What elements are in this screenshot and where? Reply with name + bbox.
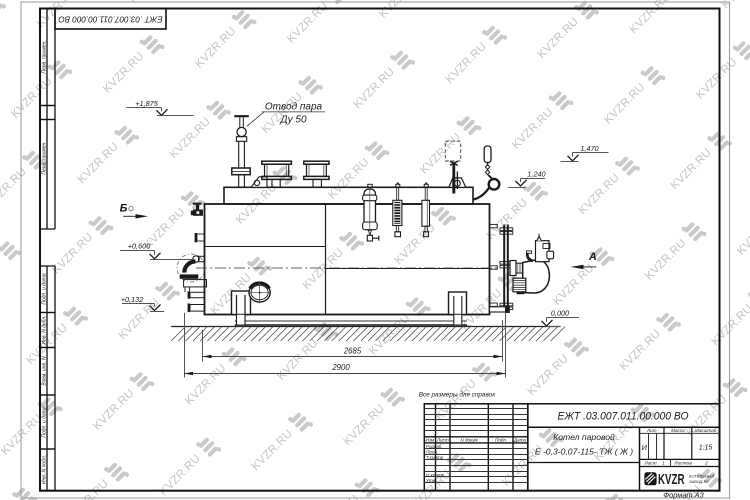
- svg-text:KVZR.RU: KVZR.RU: [341, 402, 387, 448]
- svg-text:KVZR.RU: KVZR.RU: [182, 361, 228, 407]
- svg-text:Изм: Изм: [426, 438, 435, 443]
- svg-text:1,240: 1,240: [527, 170, 545, 179]
- svg-text:КОТЕЛЬНЫЙ: КОТЕЛЬНЫЙ: [689, 474, 714, 479]
- svg-text:KVZR.RU: KVZR.RU: [376, 0, 422, 21]
- svg-text:N докум: N докум: [460, 438, 478, 443]
- svg-text:Утв.: Утв.: [426, 478, 436, 483]
- svg-text:KVZR.RU: KVZR.RU: [274, 336, 320, 382]
- svg-text:+0,132: +0,132: [121, 295, 144, 304]
- svg-text:ЗАВОД.РУ: ЗАВОД.РУ: [689, 479, 709, 484]
- svg-text:1,470: 1,470: [580, 144, 598, 153]
- svg-text:Лист: Лист: [643, 461, 656, 467]
- svg-text:Пров.: Пров.: [426, 450, 438, 455]
- svg-text:Дата: Дата: [513, 438, 527, 443]
- svg-text:Лит: Лит: [646, 428, 657, 433]
- svg-text:Ду 50: Ду 50: [279, 115, 306, 126]
- svg-text:KVZR.RU: KVZR.RU: [617, 327, 663, 373]
- svg-text:KVZR.RU: KVZR.RU: [601, 80, 647, 126]
- svg-text:Разраб.: Разраб.: [426, 444, 443, 449]
- svg-text:KVZR.RU: KVZR.RU: [75, 140, 121, 186]
- svg-text:2: 2: [704, 461, 708, 467]
- svg-text:KVZR.RU: KVZR.RU: [642, 236, 688, 282]
- svg-text:Инв. N дубл.: Инв. N дубл.: [41, 316, 47, 345]
- svg-text:KVZR.RU: KVZR.RU: [0, 255, 4, 301]
- svg-text:KVZR.RU: KVZR.RU: [126, 0, 172, 5]
- svg-text:KVZR.RU: KVZR.RU: [535, 15, 581, 61]
- svg-text:KVZR.RU: KVZR.RU: [351, 65, 397, 111]
- svg-text:KVZR.RU: KVZR.RU: [315, 492, 361, 500]
- svg-text:Инв. N подл.: Инв. N подл.: [41, 455, 47, 484]
- svg-text:Взам. инв. N: Взам. инв. N: [41, 356, 47, 386]
- svg-text:2900: 2900: [331, 363, 350, 372]
- svg-text:1: 1: [662, 461, 665, 467]
- svg-text:Т.контр: Т.контр: [426, 455, 444, 460]
- svg-text:KVZR: KVZR: [658, 471, 685, 488]
- svg-text:А: А: [588, 251, 597, 263]
- svg-text:KVZR.RU: KVZR.RU: [668, 146, 714, 192]
- svg-text:KVZR.RU: KVZR.RU: [0, 411, 45, 457]
- svg-text:KVZR.RU: KVZR.RU: [443, 40, 489, 86]
- svg-text:KVZR.RU: KVZR.RU: [49, 230, 95, 276]
- svg-text:Б: Б: [120, 203, 128, 215]
- svg-text:KVZR.RU: KVZR.RU: [525, 352, 571, 398]
- svg-text:KVZR.RU: KVZR.RU: [576, 171, 622, 217]
- svg-text:KVZR.RU: KVZR.RU: [259, 90, 305, 136]
- svg-text:0,000: 0,000: [551, 309, 569, 318]
- svg-text:KVZR.RU: KVZR.RU: [167, 115, 213, 161]
- svg-text:Перв. примен.: Перв. примен.: [41, 40, 47, 73]
- svg-text:Листов: Листов: [673, 461, 692, 467]
- svg-text:Подп: Подп: [495, 438, 506, 443]
- svg-text:Масса: Масса: [671, 428, 685, 433]
- svg-text:KVZR.RU: KVZR.RU: [65, 477, 111, 500]
- svg-text:KVZR.RU: KVZR.RU: [693, 55, 739, 101]
- svg-text:ЕЖТ .03.007.011.00.000 ВО: ЕЖТ .03.007.011.00.000 ВО: [558, 410, 689, 422]
- svg-text:Е -0,3-0,07-115- ТЖ ( Ж ): Е -0,3-0,07-115- ТЖ ( Ж ): [535, 447, 633, 457]
- svg-text:KVZR.RU: KVZR.RU: [734, 211, 750, 257]
- svg-text:KVZR.RU: KVZR.RU: [100, 49, 146, 95]
- svg-text:И: И: [642, 443, 648, 452]
- svg-text:2685: 2685: [343, 347, 362, 356]
- svg-text:+0,600: +0,600: [128, 241, 151, 250]
- svg-text:KVZR.RU: KVZR.RU: [249, 427, 295, 473]
- svg-text:Формат А3: Формат А3: [663, 491, 704, 500]
- svg-text:KVZR.RU: KVZR.RU: [0, 165, 29, 211]
- svg-text:Н.контр: Н.контр: [426, 472, 445, 477]
- svg-text:Котел паровой: Котел паровой: [553, 432, 615, 442]
- svg-text:KVZR.RU: KVZR.RU: [433, 377, 479, 423]
- svg-text:Отвод пара: Отвод пара: [265, 102, 323, 113]
- svg-text:Лист: Лист: [436, 438, 449, 443]
- svg-text:Подп. и дата: Подп. и дата: [41, 406, 47, 438]
- svg-text:KVZR.RU: KVZR.RU: [8, 74, 54, 120]
- svg-text:+1,875: +1,875: [135, 99, 158, 108]
- svg-text:KVZR.RU: KVZR.RU: [192, 24, 238, 70]
- svg-text:KVZR.RU: KVZR.RU: [509, 105, 555, 151]
- svg-text:KVZR.RU: KVZR.RU: [550, 261, 596, 307]
- svg-text:KVZR.RU: KVZR.RU: [417, 130, 463, 176]
- svg-text:KVZR.RU: KVZR.RU: [90, 386, 136, 432]
- svg-text:KVZR.RU: KVZR.RU: [284, 0, 330, 46]
- svg-text:ЕЖТ .03.007.011.00.000 ВО: ЕЖТ .03.007.011.00.000 ВО: [58, 14, 163, 23]
- svg-text:KVZR.RU: KVZR.RU: [627, 0, 673, 36]
- svg-text:Перв. примен.: Перв. примен.: [41, 141, 47, 174]
- svg-text:Все размеры для справок: Все размеры для справок: [419, 390, 497, 398]
- svg-text:Масштаб: Масштаб: [695, 428, 717, 433]
- svg-text:1:15: 1:15: [699, 445, 713, 452]
- svg-text:Подп. и дата: Подп. и дата: [41, 273, 47, 305]
